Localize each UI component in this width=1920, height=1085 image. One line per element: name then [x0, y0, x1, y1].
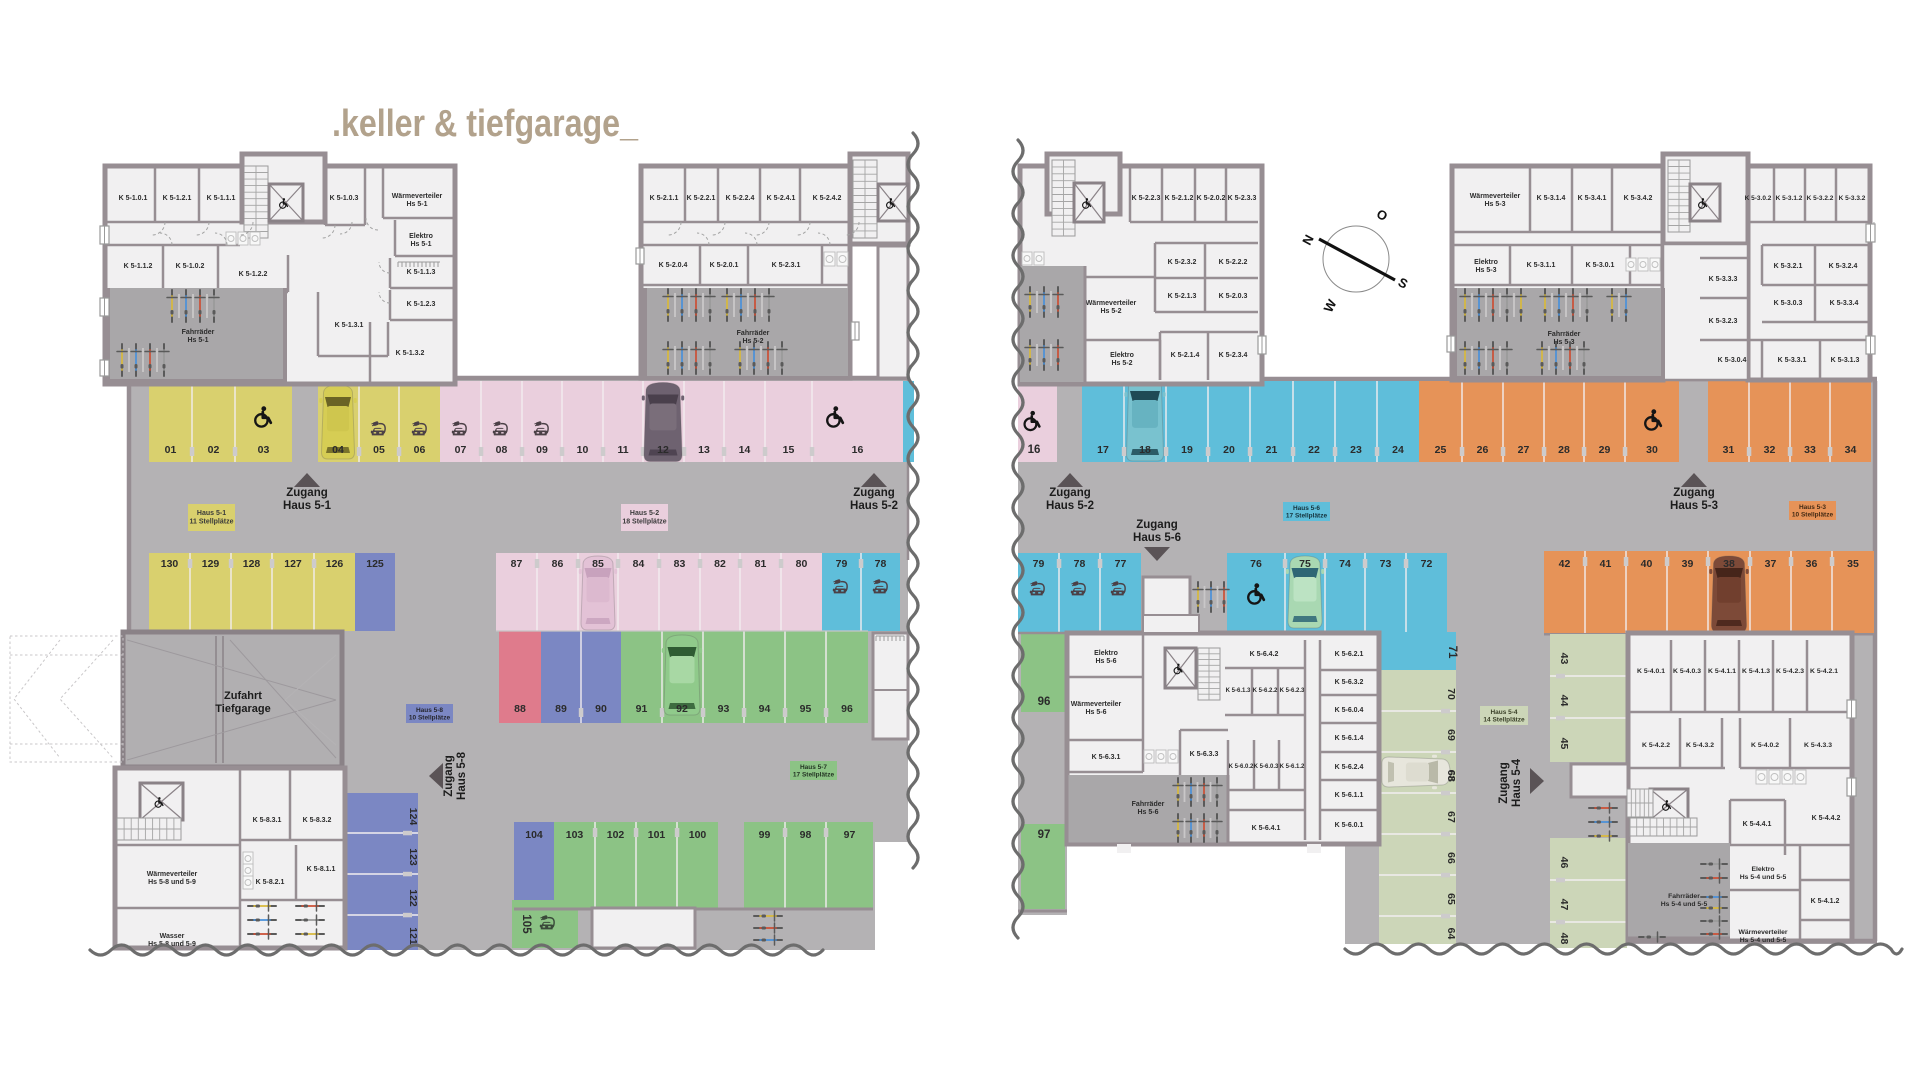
svg-text:03: 03 [258, 444, 270, 456]
svg-text:K 5-2.4.1: K 5-2.4.1 [767, 195, 796, 202]
svg-text:K 5-4.1.3: K 5-4.1.3 [1742, 668, 1770, 675]
svg-text:79: 79 [836, 558, 848, 570]
svg-text:K 5-4.0.3: K 5-4.0.3 [1673, 668, 1701, 675]
svg-text:93: 93 [718, 703, 730, 715]
svg-text:39: 39 [1682, 558, 1694, 570]
svg-text:K 5-1.2.2: K 5-1.2.2 [239, 271, 268, 278]
svg-text:K 5-2.0.1: K 5-2.0.1 [710, 262, 739, 269]
svg-text:K 5-6.3.2: K 5-6.3.2 [1335, 679, 1364, 686]
svg-text:K 5-4.0.1: K 5-4.0.1 [1637, 668, 1665, 675]
svg-text:24: 24 [1392, 444, 1404, 456]
svg-text:K 5-8.2.1: K 5-8.2.1 [256, 879, 285, 886]
svg-text:K 5-3.0.1: K 5-3.0.1 [1586, 262, 1615, 269]
svg-text:Haus 5-8: Haus 5-8 [456, 751, 468, 800]
svg-text:48: 48 [1558, 933, 1570, 945]
svg-text:K 5-2.1.4: K 5-2.1.4 [1171, 352, 1200, 359]
svg-text:38: 38 [1723, 558, 1735, 570]
svg-text:45: 45 [1558, 738, 1570, 750]
svg-text:47: 47 [1558, 899, 1570, 911]
svg-text:ZugangHaus 5-3: ZugangHaus 5-3 [1670, 487, 1718, 512]
svg-text:K 5-4.1.1: K 5-4.1.1 [1708, 668, 1736, 675]
svg-text:27: 27 [1518, 444, 1530, 456]
svg-text:ZugangHaus 5-6: ZugangHaus 5-6 [1133, 519, 1181, 544]
svg-text:K 5-4.4.1: K 5-4.4.1 [1743, 821, 1772, 828]
svg-text:30: 30 [1646, 444, 1658, 456]
svg-text:K 5-1.0.2: K 5-1.0.2 [176, 263, 205, 270]
svg-text:K 5-1.1.3: K 5-1.1.3 [407, 269, 436, 276]
svg-text:Haus 5-4: Haus 5-4 [1511, 758, 1523, 807]
svg-text:125: 125 [366, 558, 384, 570]
svg-text:K 5-8.3.2: K 5-8.3.2 [303, 817, 332, 824]
svg-text:K 5-6.1.3: K 5-6.1.3 [1226, 688, 1251, 694]
svg-text:122: 122 [407, 889, 419, 907]
svg-text:101: 101 [648, 829, 666, 841]
svg-text:K 5-2.2.1: K 5-2.2.1 [687, 195, 716, 202]
svg-text:83: 83 [674, 558, 686, 570]
svg-text:104: 104 [525, 829, 543, 841]
svg-text:96: 96 [1038, 696, 1051, 708]
svg-text:K 5-1.2.3: K 5-1.2.3 [407, 301, 436, 308]
svg-text:18: 18 [1139, 444, 1151, 456]
svg-text:K 5-3.1.1: K 5-3.1.1 [1527, 262, 1556, 269]
svg-text:129: 129 [202, 558, 220, 570]
svg-text:37: 37 [1765, 558, 1777, 570]
svg-text:82: 82 [714, 558, 726, 570]
svg-text:ZugangHaus 5-1: ZugangHaus 5-1 [283, 487, 332, 512]
svg-text:06: 06 [414, 444, 426, 456]
svg-text:85: 85 [592, 558, 604, 570]
svg-text:K 5-3.2.3: K 5-3.2.3 [1709, 318, 1738, 325]
svg-text:88: 88 [514, 703, 526, 715]
svg-text:16: 16 [852, 444, 864, 456]
svg-text:K 5-3.0.4: K 5-3.0.4 [1718, 357, 1747, 364]
svg-text:123: 123 [407, 848, 419, 866]
svg-text:K 5-6.2.2: K 5-6.2.2 [1253, 688, 1278, 694]
svg-text:K 5-4.0.2: K 5-4.0.2 [1751, 742, 1779, 749]
svg-text:K 5-1.0.3: K 5-1.0.3 [330, 195, 359, 202]
svg-text:K 5-2.1.2: K 5-2.1.2 [1165, 195, 1194, 202]
svg-text:124: 124 [407, 808, 419, 826]
svg-text:68: 68 [1445, 770, 1457, 782]
svg-text:86: 86 [552, 558, 564, 570]
svg-text:K 5-3.1.4: K 5-3.1.4 [1537, 195, 1566, 202]
svg-text:94: 94 [759, 703, 771, 715]
svg-text:08: 08 [496, 444, 508, 456]
svg-text:29: 29 [1599, 444, 1611, 456]
svg-text:K 5-3.2.4: K 5-3.2.4 [1829, 263, 1858, 270]
svg-text:K 5-1.1.2: K 5-1.1.2 [124, 263, 153, 270]
svg-text:K 5-2.1.1: K 5-2.1.1 [650, 195, 679, 202]
svg-text:72: 72 [1421, 558, 1433, 570]
svg-text:K 5-2.3.4: K 5-2.3.4 [1219, 352, 1248, 359]
svg-text:K 5-3.1.2: K 5-3.1.2 [1776, 195, 1803, 202]
svg-text:K 5-2.2.4: K 5-2.2.4 [726, 195, 755, 202]
svg-text:67: 67 [1445, 811, 1457, 823]
svg-text:43: 43 [1558, 653, 1570, 665]
svg-text:36: 36 [1806, 558, 1818, 570]
svg-text:10: 10 [577, 444, 589, 456]
svg-text:Zugang: Zugang [1498, 762, 1510, 804]
svg-text:69: 69 [1445, 729, 1457, 741]
svg-text:78: 78 [875, 558, 887, 570]
svg-text:K 5-3.0.3: K 5-3.0.3 [1774, 300, 1803, 307]
svg-text:K 5-3.2.2: K 5-3.2.2 [1807, 195, 1834, 202]
svg-text:103: 103 [566, 829, 584, 841]
svg-text:15: 15 [783, 444, 795, 456]
svg-text:74: 74 [1339, 558, 1351, 570]
svg-text:87: 87 [511, 558, 523, 570]
svg-text:K 5-6.4.2: K 5-6.4.2 [1250, 651, 1279, 658]
svg-text:K 5-3.4.1: K 5-3.4.1 [1578, 195, 1607, 202]
svg-text:ElektroHs 5-1: ElektroHs 5-1 [409, 233, 433, 248]
svg-text:K 5-1.2.1: K 5-1.2.1 [163, 195, 192, 202]
svg-text:K 5-2.2.2: K 5-2.2.2 [1219, 259, 1248, 266]
svg-text:100: 100 [689, 829, 707, 841]
svg-text:ElektroHs 5-6: ElektroHs 5-6 [1094, 650, 1118, 665]
svg-text:44: 44 [1558, 695, 1570, 707]
svg-text:07: 07 [455, 444, 467, 456]
svg-text:78: 78 [1074, 558, 1086, 570]
svg-text:121: 121 [407, 927, 419, 945]
svg-text:Zugang: Zugang [443, 755, 455, 797]
svg-text:97: 97 [1038, 829, 1051, 841]
svg-text:09: 09 [536, 444, 548, 456]
svg-text:K 5-3.1.3: K 5-3.1.3 [1831, 357, 1860, 364]
svg-text:73: 73 [1380, 558, 1392, 570]
svg-text:31: 31 [1723, 444, 1735, 456]
svg-text:K 5-2.0.3: K 5-2.0.3 [1219, 293, 1248, 300]
svg-text:K 5-6.1.4: K 5-6.1.4 [1335, 735, 1364, 742]
svg-text:K 5-6.0.3: K 5-6.0.3 [1254, 764, 1279, 770]
svg-text:42: 42 [1559, 558, 1571, 570]
svg-text:26: 26 [1477, 444, 1489, 456]
svg-text:70: 70 [1445, 688, 1457, 700]
svg-text:89: 89 [555, 703, 567, 715]
svg-text:33: 33 [1804, 444, 1816, 456]
svg-text:K 5-4.2.1: K 5-4.2.1 [1810, 668, 1838, 675]
svg-text:K 5-3.4.2: K 5-3.4.2 [1624, 195, 1653, 202]
svg-text:K 5-2.0.4: K 5-2.0.4 [659, 262, 688, 269]
svg-text:K 5-1.3.2: K 5-1.3.2 [396, 350, 425, 357]
svg-text:K 5-3.3.2: K 5-3.3.2 [1839, 195, 1866, 202]
svg-text:81: 81 [755, 558, 767, 570]
svg-text:K 5-4.3.2: K 5-4.3.2 [1686, 742, 1714, 749]
svg-text:ElektroHs 5-3: ElektroHs 5-3 [1474, 259, 1498, 274]
svg-text:23: 23 [1350, 444, 1362, 456]
svg-text:71: 71 [1446, 646, 1458, 659]
svg-text:97: 97 [844, 829, 856, 841]
svg-text:K 5-2.1.3: K 5-2.1.3 [1168, 293, 1197, 300]
svg-text:K 5-1.1.1: K 5-1.1.1 [207, 195, 236, 202]
svg-text:K 5-3.0.2: K 5-3.0.2 [1745, 195, 1772, 202]
svg-text:65: 65 [1445, 893, 1457, 905]
svg-text:K 5-2.4.2: K 5-2.4.2 [813, 195, 842, 202]
svg-text:ElektroHs 5-2: ElektroHs 5-2 [1110, 352, 1134, 367]
svg-text:K 5-2.3.3: K 5-2.3.3 [1228, 195, 1257, 202]
svg-text:.keller & tiefgarage_: .keller & tiefgarage_ [332, 103, 639, 145]
svg-text:98: 98 [800, 829, 812, 841]
svg-text:130: 130 [161, 558, 179, 570]
svg-text:K 5-3.2.1: K 5-3.2.1 [1774, 263, 1803, 270]
svg-text:ZugangHaus 5-2: ZugangHaus 5-2 [1046, 487, 1094, 512]
svg-text:01: 01 [165, 444, 177, 456]
svg-text:K 5-8.1.1: K 5-8.1.1 [307, 866, 336, 873]
svg-text:K 5-1.0.1: K 5-1.0.1 [119, 195, 148, 202]
svg-text:96: 96 [841, 703, 853, 715]
svg-text:22: 22 [1308, 444, 1320, 456]
svg-text:K 5-6.3.1: K 5-6.3.1 [1092, 754, 1121, 761]
svg-text:16: 16 [1028, 444, 1041, 456]
svg-text:46: 46 [1558, 857, 1570, 869]
svg-text:66: 66 [1445, 852, 1457, 864]
svg-text:K 5-6.1.2: K 5-6.1.2 [1280, 764, 1305, 770]
svg-text:14: 14 [739, 444, 751, 456]
svg-text:34: 34 [1845, 444, 1857, 456]
svg-text:K 5-3.3.1: K 5-3.3.1 [1778, 357, 1807, 364]
svg-text:K 5-2.0.2: K 5-2.0.2 [1197, 195, 1226, 202]
svg-text:K 5-1.3.1: K 5-1.3.1 [335, 322, 364, 329]
svg-text:126: 126 [326, 558, 344, 570]
svg-text:K 5-4.2.2: K 5-4.2.2 [1642, 742, 1670, 749]
svg-text:WärmeverteilerHs 5-4 und 5-5: WärmeverteilerHs 5-4 und 5-5 [1738, 929, 1787, 944]
svg-text:95: 95 [800, 703, 812, 715]
svg-text:99: 99 [759, 829, 771, 841]
svg-text:84: 84 [633, 558, 645, 570]
svg-text:K 5-6.4.1: K 5-6.4.1 [1252, 825, 1281, 832]
svg-text:80: 80 [796, 558, 808, 570]
svg-text:19: 19 [1181, 444, 1193, 456]
svg-text:40: 40 [1641, 558, 1653, 570]
svg-text:K 5-6.0.2: K 5-6.0.2 [1229, 764, 1254, 770]
svg-text:35: 35 [1847, 558, 1859, 570]
svg-text:04: 04 [332, 444, 344, 456]
svg-text:K 5-6.1.1: K 5-6.1.1 [1335, 792, 1364, 799]
svg-text:K 5-4.4.2: K 5-4.4.2 [1812, 815, 1841, 822]
svg-text:12: 12 [657, 444, 669, 456]
svg-text:127: 127 [284, 558, 302, 570]
svg-text:WärmeverteilerHs 5-8 und 5-9: WärmeverteilerHs 5-8 und 5-9 [147, 871, 198, 886]
svg-text:05: 05 [373, 444, 385, 456]
svg-text:K 5-6.2.1: K 5-6.2.1 [1335, 651, 1364, 658]
svg-text:79: 79 [1033, 558, 1045, 570]
svg-text:64: 64 [1445, 928, 1457, 940]
svg-text:02: 02 [208, 444, 220, 456]
svg-text:K 5-3.3.4: K 5-3.3.4 [1830, 300, 1859, 307]
svg-text:25: 25 [1435, 444, 1447, 456]
svg-text:128: 128 [243, 558, 261, 570]
svg-text:K 5-8.3.1: K 5-8.3.1 [253, 817, 282, 824]
svg-text:75: 75 [1299, 558, 1311, 570]
svg-text:K 5-2.3.1: K 5-2.3.1 [772, 262, 801, 269]
svg-text:K 5-6.2.3: K 5-6.2.3 [1280, 688, 1305, 694]
svg-text:13: 13 [698, 444, 710, 456]
svg-text:105: 105 [520, 914, 532, 934]
svg-text:K 5-4.3.3: K 5-4.3.3 [1804, 742, 1832, 749]
svg-text:17: 17 [1097, 444, 1109, 456]
svg-text:K 5-2.2.3: K 5-2.2.3 [1132, 195, 1161, 202]
svg-text:28: 28 [1558, 444, 1570, 456]
svg-text:92: 92 [676, 703, 688, 715]
svg-text:ZugangHaus 5-2: ZugangHaus 5-2 [850, 487, 898, 512]
svg-text:K 5-3.3.3: K 5-3.3.3 [1709, 276, 1738, 283]
svg-text:32: 32 [1764, 444, 1776, 456]
svg-text:K 5-4.2.3: K 5-4.2.3 [1776, 668, 1804, 675]
svg-text:20: 20 [1223, 444, 1235, 456]
svg-text:K 5-2.3.2: K 5-2.3.2 [1168, 259, 1197, 266]
svg-text:11: 11 [617, 444, 628, 456]
svg-text:21: 21 [1266, 444, 1278, 456]
svg-text:K 5-6.3.3: K 5-6.3.3 [1190, 751, 1219, 758]
svg-text:76: 76 [1250, 558, 1262, 570]
svg-text:K 5-6.0.4: K 5-6.0.4 [1335, 707, 1364, 714]
svg-text:77: 77 [1115, 558, 1127, 570]
svg-text:K 5-6.2.4: K 5-6.2.4 [1335, 764, 1364, 771]
svg-text:K 5-6.0.1: K 5-6.0.1 [1335, 822, 1364, 829]
svg-text:41: 41 [1600, 558, 1612, 570]
svg-text:91: 91 [636, 703, 648, 715]
svg-text:102: 102 [607, 829, 625, 841]
svg-text:90: 90 [595, 703, 607, 715]
svg-text:K 5-4.1.2: K 5-4.1.2 [1811, 898, 1840, 905]
